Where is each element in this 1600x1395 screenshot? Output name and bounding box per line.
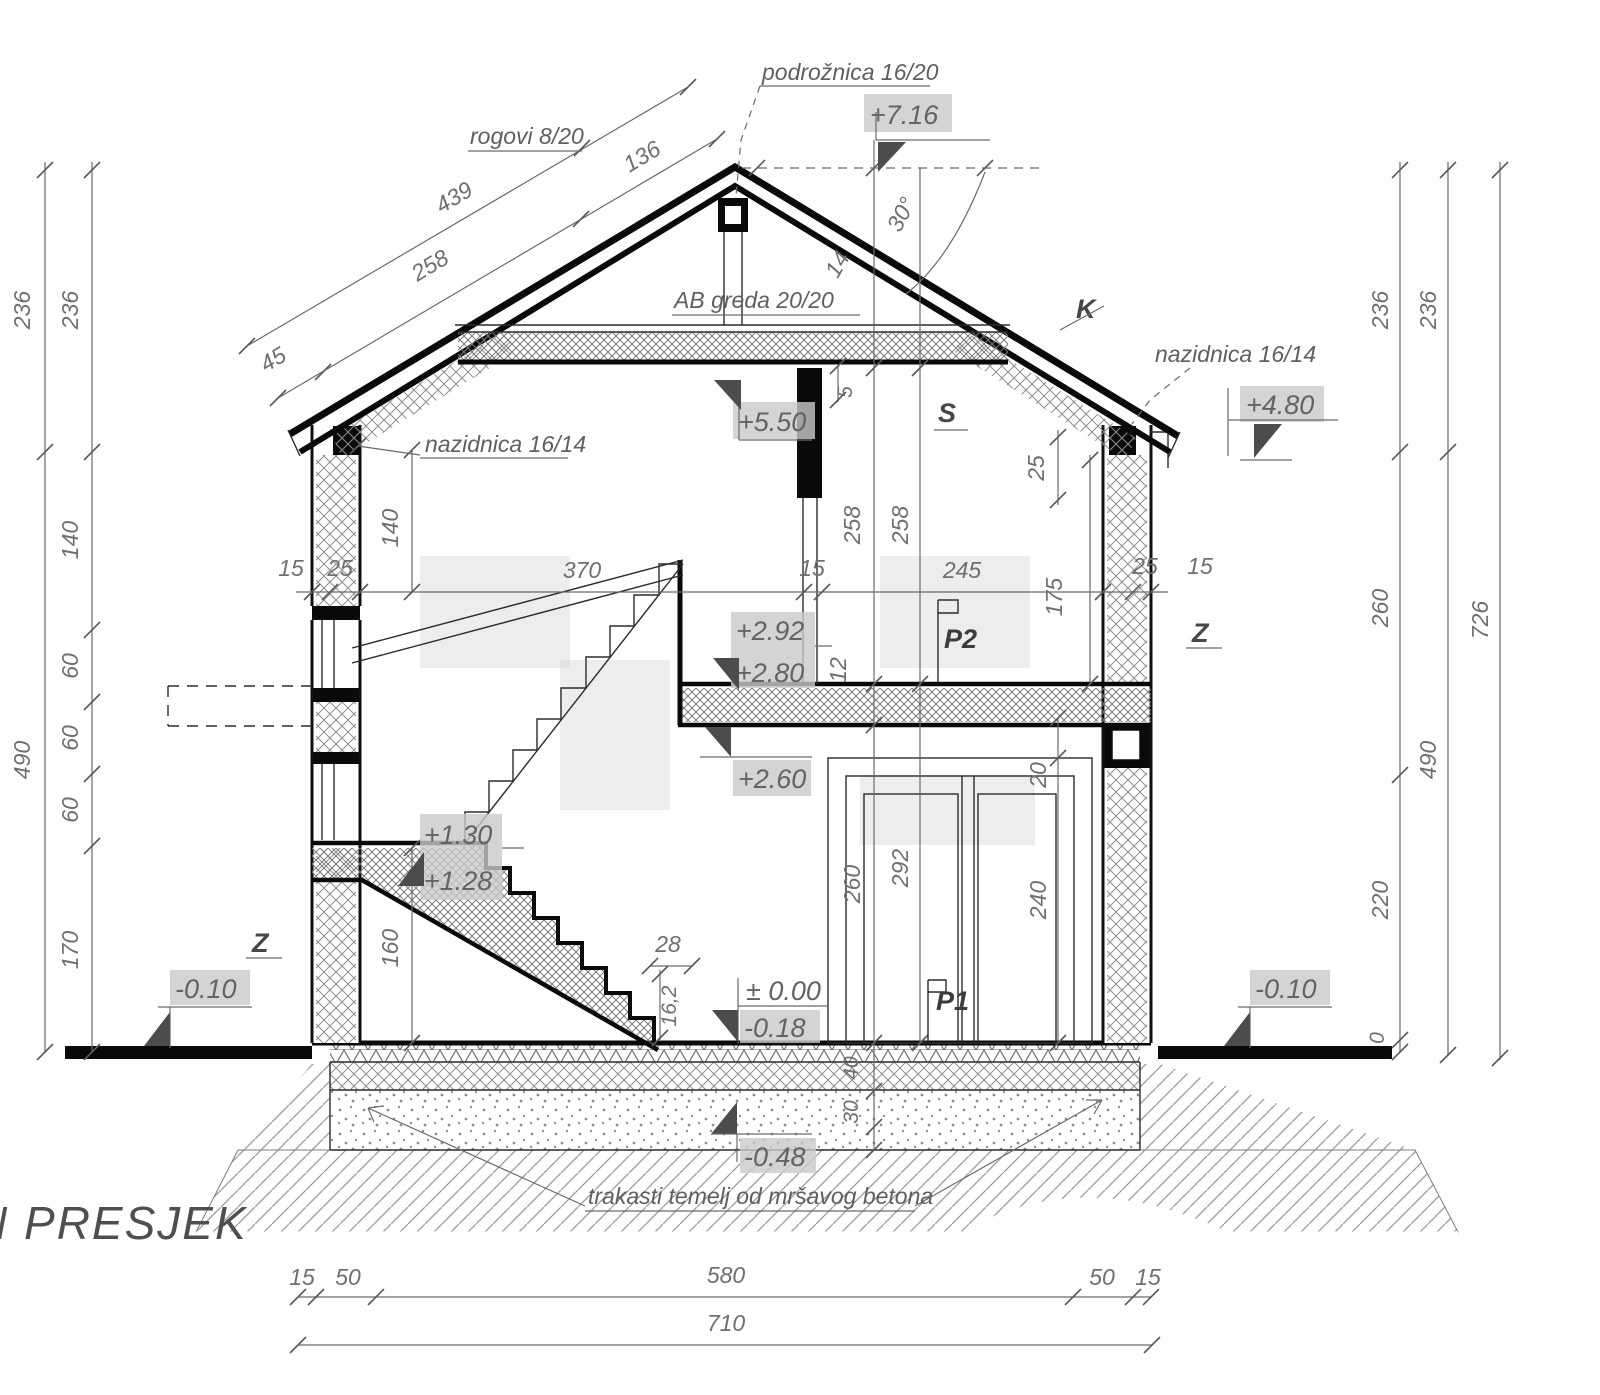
podroznica-label: podrožnica 16/20	[761, 59, 939, 85]
svg-text:+2.60: +2.60	[738, 764, 806, 794]
svg-text:+1.28: +1.28	[424, 866, 492, 896]
svg-text:+7.16: +7.16	[870, 100, 939, 130]
door-label-p1: P1	[936, 986, 969, 1016]
dim: 260	[1367, 589, 1393, 629]
dim: 236	[57, 291, 83, 331]
dim: 15	[278, 555, 304, 581]
svg-text:-0.18: -0.18	[744, 1013, 806, 1043]
dim: 710	[707, 1310, 746, 1336]
marker-010-left: -0.10	[144, 970, 252, 1048]
dim: 0	[1366, 1032, 1389, 1044]
dim-chain-interior-horizontal: 15 25 370 15 245 25 15	[278, 553, 1213, 600]
dim: 580	[707, 1262, 746, 1288]
dim: 160	[377, 929, 403, 968]
dim: 40	[840, 1056, 863, 1080]
dim: 25	[1023, 455, 1049, 482]
svg-text:+5.50: +5.50	[738, 407, 806, 437]
dim: 15	[1187, 553, 1213, 579]
marker-000-018: ± 0.00 -0.18	[712, 976, 828, 1043]
nazidnica-right-label: nazidnica 16/14	[1155, 341, 1316, 367]
svg-text:-0.48: -0.48	[744, 1142, 806, 1172]
dim: 439	[431, 176, 477, 218]
dim: 136	[619, 135, 665, 177]
svg-text:+1.30: +1.30	[424, 820, 492, 850]
dim: 236	[1415, 291, 1441, 331]
dim: 175	[1041, 578, 1067, 617]
marker-480: +4.80	[1228, 386, 1338, 460]
dim: 16,2	[658, 985, 681, 1026]
abgreda-label: AB greda 20/20	[672, 287, 834, 313]
right-wall	[1103, 425, 1168, 1043]
dim: 45	[255, 341, 290, 377]
svg-text:-0.10: -0.10	[1255, 974, 1317, 1004]
dim: 15	[1135, 1264, 1161, 1290]
dim: 60	[57, 725, 83, 751]
svg-text:+2.80: +2.80	[736, 658, 804, 688]
dim: 220	[1367, 881, 1393, 921]
dim: 140	[377, 509, 403, 548]
section-z-left: Z	[251, 928, 270, 958]
marker-716: +7.16	[864, 94, 990, 172]
attic-ceiling	[455, 325, 1010, 362]
angle-label: 30°	[881, 193, 920, 236]
dim: 20	[1025, 762, 1051, 789]
dim: 140	[57, 521, 83, 560]
dim: 245	[942, 557, 982, 583]
svg-text:-0.10: -0.10	[175, 974, 237, 1004]
dim: 15	[289, 1264, 315, 1290]
dim: 5	[834, 386, 857, 398]
dim: 12	[825, 657, 851, 683]
dim: 30	[840, 1100, 863, 1124]
dim: 25	[1131, 553, 1158, 579]
drawing-title: N PRESJEK	[0, 1196, 248, 1250]
dim-chain-left: 236 236 490 140 60 60 60 170	[9, 162, 100, 1060]
dim-chain-right: 236 236 260 220 0 490 726	[1366, 162, 1508, 1066]
dim: 60	[57, 797, 83, 823]
dim: 292	[887, 849, 913, 889]
dim: 240	[1025, 881, 1051, 921]
door-label-p2: P2	[944, 624, 977, 654]
dim: 258	[887, 506, 913, 546]
canopy-dashed	[168, 686, 312, 726]
nazidnica-left-label: nazidnica 16/14	[425, 431, 586, 457]
dim: 236	[9, 291, 35, 331]
dim: 25	[326, 555, 353, 581]
svg-text:+4.80: +4.80	[1246, 390, 1314, 420]
ground-line-right	[1158, 1046, 1392, 1059]
section-drawing: 236 236 490 140 60 60 60 170 236 236 260…	[0, 0, 1600, 1395]
svg-text:± 0.00: ± 0.00	[746, 976, 821, 1006]
dim: 60	[57, 653, 83, 679]
left-wall	[312, 425, 360, 1043]
dim: 50	[1089, 1264, 1115, 1290]
marker-260: +2.60	[700, 727, 812, 796]
dim: 28	[654, 931, 681, 957]
dim: 258	[406, 244, 453, 287]
marker-010-right: -0.10	[1224, 970, 1332, 1048]
dim: 236	[1367, 291, 1393, 331]
dim: 14	[819, 246, 854, 281]
dim-chain-bottom: 15 50 580 50 15 710	[289, 1262, 1161, 1353]
dim: 260	[839, 865, 865, 905]
dim: 490	[9, 741, 35, 780]
dim: 490	[1415, 741, 1441, 780]
section-s: S	[938, 398, 956, 428]
dim: 258	[839, 506, 865, 546]
dim: 170	[57, 931, 83, 970]
dim: 370	[563, 557, 602, 583]
marker-292-280: +2.92 +2.80	[713, 612, 832, 690]
temelj-label: trakasti temelj od mršavog betona	[588, 1183, 933, 1209]
ridge-level-and-angle: 30°	[742, 160, 1042, 294]
ground-line-left	[65, 1046, 312, 1059]
dim: 50	[335, 1264, 361, 1290]
dim: 726	[1467, 601, 1493, 640]
dim: 15	[799, 555, 825, 581]
rogovi-label: rogovi 8/20	[470, 123, 584, 149]
section-z-right: Z	[1191, 618, 1210, 648]
svg-text:+2.92: +2.92	[736, 616, 804, 646]
